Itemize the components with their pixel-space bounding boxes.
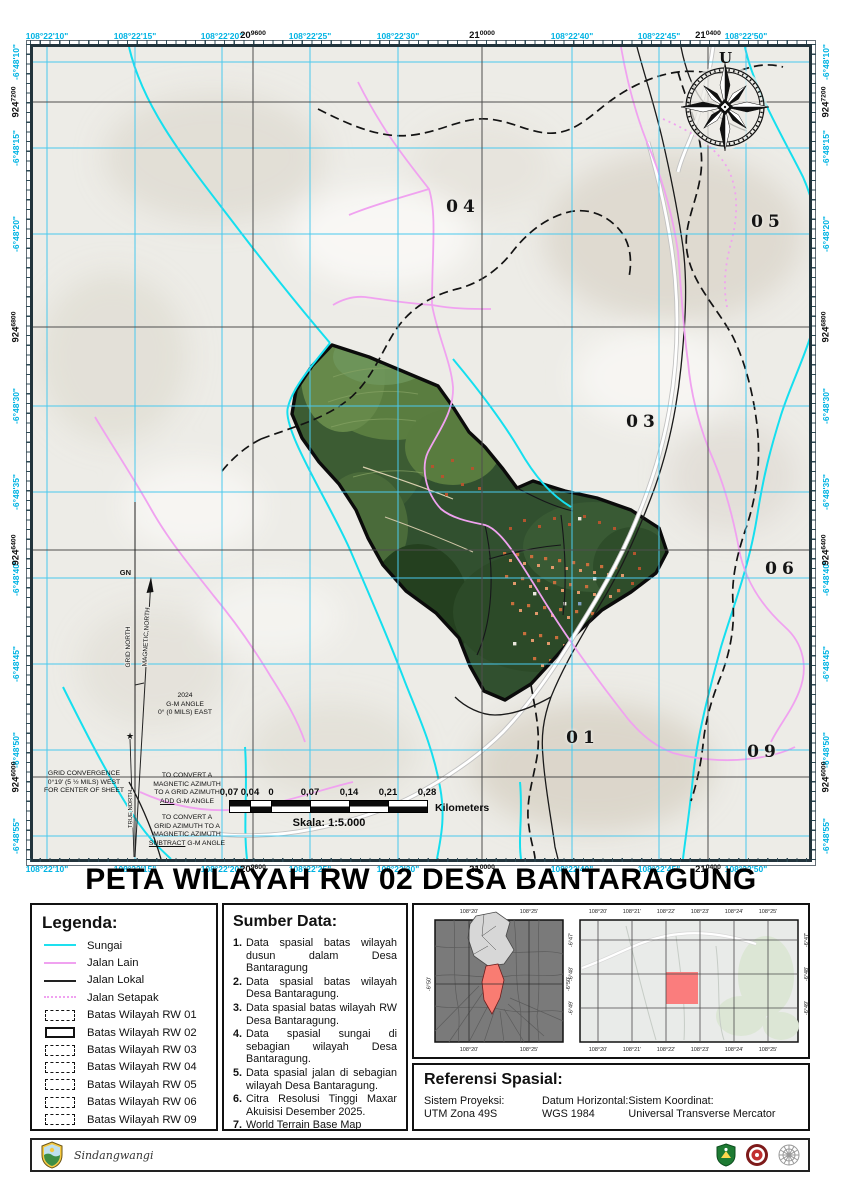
add-emphasis: ADD <box>160 798 174 805</box>
inset-lon-label: 108°23' <box>691 1047 710 1053</box>
data-source-item: 6. Citra Resolusi Tinggi Maxar Akuisisi … <box>233 1093 397 1118</box>
spatial-reference-panel: Referensi Spasial: Sistem Proyeksi: UTM … <box>412 1063 810 1131</box>
grid-north-label: GRID NORTH <box>125 626 132 667</box>
legend-swatch-icon <box>42 1044 78 1057</box>
legend-item: Batas Wilayah RW 02 <box>42 1024 206 1041</box>
scalebar-tick-label: 0,04 <box>241 787 260 798</box>
easting-main: 21 <box>695 30 706 41</box>
northing-label: 9246800 <box>11 312 22 343</box>
northing-sup: 6800 <box>821 312 828 327</box>
regency-crest-icon <box>40 1141 64 1169</box>
convert-grid-line: TO CONVERT A <box>137 814 237 823</box>
northing-label: 9246000 <box>821 762 832 793</box>
latitude-label: -6°48'10" <box>11 44 21 80</box>
data-source-text: World Terrain Base Map <box>246 1119 361 1132</box>
northing-main: 924 <box>821 777 832 793</box>
region-label: 06 <box>765 559 799 579</box>
scalebar-tick-label: 0,07 <box>301 787 320 798</box>
scalebar-bar <box>229 800 428 813</box>
longitude-label: 108°22'45" <box>638 31 681 41</box>
inset-lon-label: 108°22' <box>657 909 676 915</box>
northing-sup: 7200 <box>11 87 18 102</box>
spatial-reference-field: Datum Horizontal: WGS 1984 <box>542 1095 628 1121</box>
easting-label: 209600 <box>240 30 266 41</box>
grid-convergence-line: 0°19' (5 ½ MILS) WEST <box>33 779 135 788</box>
convert-magnetic-emphasis-line: ADD G-M ANGLE <box>137 798 237 807</box>
northing-sup: 6800 <box>11 312 18 327</box>
northing-sup: 6000 <box>11 762 18 777</box>
legend-swatch-icon <box>42 957 78 970</box>
legend-item-label: Batas Wilayah RW 01 <box>87 1009 197 1021</box>
data-source-item: 1. Data spasial batas wilayah dusun dala… <box>233 937 397 975</box>
grid-convergence-note: GRID CONVERGENCE0°19' (5 ½ MILS) WESTFOR… <box>33 770 135 796</box>
latitude-label: -6°48'35" <box>11 474 21 510</box>
legend-item-label: Batas Wilayah RW 03 <box>87 1044 197 1056</box>
legend-item-label: Jalan Lain <box>87 957 139 969</box>
data-source-item: 4. Data spasial sungai di sebagian wilay… <box>233 1028 397 1066</box>
northing-label: 9247200 <box>11 87 22 118</box>
grid-convergence-line: GRID CONVERGENCE <box>33 770 135 779</box>
convert-grid-line: GRID AZIMUTH TO A <box>137 823 237 832</box>
legend-swatch-icon <box>42 1026 78 1039</box>
inset-lon-label: 108°20' <box>460 909 479 915</box>
north-arrow-label: U <box>719 49 732 67</box>
spatial-reference-value: UTM Zona 49S <box>424 1108 542 1121</box>
easting-label: 210400 <box>695 30 721 41</box>
region-label: 05 <box>751 212 785 232</box>
latitude-label: -6°48'45" <box>11 646 21 682</box>
northing-sup: 6400 <box>821 535 828 550</box>
gm-angle-note: 2024G-M ANGLE0° (0 MILS) EAST <box>137 692 233 718</box>
latitude-label: -6°48'30" <box>821 388 831 424</box>
gm-angle-line: G-M ANGLE <box>137 701 233 710</box>
gm-angle-line: 2024 <box>137 692 233 701</box>
latitude-label: -6°48'55" <box>821 818 831 854</box>
longitude-label: 108°22'20" <box>201 31 244 41</box>
subtract-tail: G-M ANGLE <box>185 840 225 847</box>
data-source-text: Citra Resolusi Tinggi Maxar Akuisisi Des… <box>246 1093 397 1118</box>
data-source-number: 1. <box>233 937 246 975</box>
inset-lon-label: 108°20' <box>589 1047 608 1053</box>
longitude-label: 108°22'40" <box>551 31 594 41</box>
inset-lon-label: 108°25' <box>759 1047 778 1053</box>
legend-swatch-icon <box>42 1113 78 1126</box>
data-source-text: Data spasial batas wilayah RW Desa Banta… <box>246 1002 397 1027</box>
inset-lon-label: 108°25' <box>520 1047 539 1053</box>
longitude-label: 108°22'50" <box>725 31 768 41</box>
inset-lat-label: -6°47' <box>568 933 574 947</box>
gn-label: GN <box>120 568 131 577</box>
legend-item-label: Batas Wilayah RW 05 <box>87 1079 197 1091</box>
region-label: 09 <box>747 742 781 762</box>
legend-item: Batas Wilayah RW 03 <box>42 1041 206 1058</box>
northing-main: 924 <box>821 102 832 118</box>
spatial-reference-title: Referensi Spasial: <box>424 1071 798 1089</box>
easting-label: 210000 <box>469 30 495 41</box>
scalebar-segment <box>389 801 427 812</box>
inset-lon-label: 108°21' <box>623 909 642 915</box>
inset-lat-label: -6°49' <box>804 1001 810 1015</box>
data-source-number: 7. <box>233 1119 246 1132</box>
legend-item: Jalan Lokal <box>42 972 206 989</box>
data-source-number: 6. <box>233 1093 246 1118</box>
northing-sup: 6000 <box>821 762 828 777</box>
true-north-star-icon: ★ <box>126 731 134 741</box>
district-locator-map: 108°20' 108°21' 108°22' 108°23' 108°24' … <box>566 906 812 1056</box>
legend-item: Jalan Lain <box>42 954 206 971</box>
red-badge-logo-icon <box>745 1143 769 1167</box>
legend-swatch-icon <box>42 1061 78 1074</box>
inset-lon-label: 108°22' <box>657 1047 676 1053</box>
legend-item-label: Jalan Setapak <box>87 992 159 1004</box>
map-sheet: 040503060109 U GN GRID NORTH MAGNETIC NO… <box>0 0 842 1191</box>
easting-sup: 9600 <box>251 30 266 37</box>
region-label: 04 <box>446 197 480 217</box>
legend-swatch-icon <box>42 939 78 952</box>
scalebar-tick-label: 0,14 <box>340 787 359 798</box>
inset-lat-label: -6°48' <box>804 967 810 981</box>
data-source-item: 5. Data spasial jalan di sebagian wilaya… <box>233 1067 397 1092</box>
legend-item-label: Batas Wilayah RW 02 <box>87 1027 197 1039</box>
legend-item: Batas Wilayah RW 09 <box>42 1111 206 1128</box>
latitude-label: -6°48'30" <box>11 388 21 424</box>
inset-lat-label: -6°49' <box>568 1001 574 1015</box>
longitude-label: 108°22'15" <box>114 31 157 41</box>
latitude-label: -6°48'10" <box>821 44 831 80</box>
longitude-label: 108°22'10" <box>26 31 69 41</box>
legend-panel: Legenda: Sungai Jalan Lain Jalan Lokal <box>30 903 218 1131</box>
locator-maps-panel: 108°20' 108°25' 108°20' 108°25' -6°50' -… <box>412 903 810 1059</box>
magnetic-north-arrow-icon <box>147 577 154 593</box>
northing-label: 9246800 <box>821 312 832 343</box>
scalebar-segment <box>311 801 350 812</box>
inset-lon-label: 108°25' <box>520 909 539 915</box>
grid-convergence-line: FOR CENTER OF SHEET <box>33 787 135 796</box>
northing-label: 9246400 <box>821 535 832 566</box>
northing-main: 924 <box>11 777 22 793</box>
data-source-item: 7. World Terrain Base Map <box>233 1119 397 1132</box>
spatial-reference-field: Sistem Proyeksi: UTM Zona 49S <box>424 1095 542 1121</box>
data-sources-title: Sumber Data: <box>233 913 397 931</box>
spatial-reference-label: Datum Horizontal: <box>542 1095 628 1108</box>
data-sources-panel: Sumber Data: 1. Data spasial batas wilay… <box>222 903 408 1131</box>
legend-swatch-icon <box>42 991 78 1004</box>
northing-label: 9246400 <box>11 535 22 566</box>
legend-item-label: Batas Wilayah RW 09 <box>87 1114 197 1126</box>
legend-item-label: Batas Wilayah RW 06 <box>87 1096 197 1108</box>
easting-sup: 0000 <box>480 30 495 37</box>
latitude-label: -6°48'55" <box>11 818 21 854</box>
legend-item: Jalan Setapak <box>42 989 206 1006</box>
legend-swatch-icon <box>42 1096 78 1109</box>
data-source-text: Data spasial jalan di sebagian wilayah D… <box>246 1067 397 1092</box>
map-axis-right: -6°48'10"-6°48'15"-6°48'20"-6°48'30"-6°4… <box>813 47 839 859</box>
inset-lat-label: -6°50' <box>426 977 432 991</box>
legend-swatch-icon <box>42 1009 78 1022</box>
legend-swatch-icon <box>42 974 78 987</box>
northing-main: 924 <box>11 327 22 343</box>
scalebar-segment <box>272 801 311 812</box>
inset-lon-label: 108°23' <box>691 909 710 915</box>
northing-label: 9246000 <box>11 762 22 793</box>
inset-lon-label: 108°25' <box>759 909 778 915</box>
script-logo-text: Sindangwangi <box>74 1149 153 1162</box>
legend-item-label: Jalan Lokal <box>87 974 144 986</box>
northing-label: 9247200 <box>821 87 832 118</box>
northing-main: 924 <box>11 550 22 566</box>
data-source-text: Data spasial sungai di sebagian wilayah … <box>246 1028 397 1066</box>
inset-lon-label: 108°24' <box>725 909 744 915</box>
scalebar-tick-label: 0,28 <box>418 787 437 798</box>
map-axis-top: 108°22'10"108°22'15"108°22'20"108°22'25"… <box>33 26 809 42</box>
latitude-label: -6°48'45" <box>821 646 831 682</box>
data-source-number: 3. <box>233 1002 246 1027</box>
spatial-reference-field: Sistem Koordinat: Universal Transverse M… <box>628 1095 775 1121</box>
data-source-number: 2. <box>233 976 246 1001</box>
longitude-label: 108°22'30" <box>377 31 420 41</box>
scalebar-segment <box>350 801 389 812</box>
convert-grid-line: MAGNETIC AZIMUTH <box>137 831 237 840</box>
latitude-label: -6°48'20" <box>11 216 21 252</box>
northing-main: 924 <box>821 550 832 566</box>
spatial-reference-value: WGS 1984 <box>542 1108 628 1121</box>
highlighted-rw-extent <box>666 972 698 1004</box>
data-source-text: Data spasial batas wilayah dusun dalam D… <box>246 937 397 975</box>
longitude-label: 108°22'25" <box>289 31 332 41</box>
convert-grid-emphasis-line: SUBTRACT G-M ANGLE <box>137 840 237 849</box>
northing-sup: 7200 <box>821 87 828 102</box>
scalebar-ticks: 0,070,0400,070,140,210,28 <box>229 787 439 799</box>
scalebar-tick-label: 0 <box>268 787 273 798</box>
legend-item-label: Sungai <box>87 940 122 952</box>
inset-lon-label: 108°20' <box>589 909 608 915</box>
green-shield-logo-icon <box>716 1143 736 1167</box>
inset-lon-label: 108°20' <box>460 1047 479 1053</box>
easting-main: 20 <box>240 30 251 41</box>
data-source-text: Data spasial batas wilayah Desa Bantarag… <box>246 976 397 1001</box>
easting-sup: 0400 <box>706 30 721 37</box>
northing-main: 924 <box>821 327 832 343</box>
scalebar-unit-label: Kilometers <box>435 802 489 814</box>
footer-bar: Sindangwangi <box>30 1138 810 1172</box>
convert-grid-note: TO CONVERT AGRID AZIMUTH TO AMAGNETIC AZ… <box>137 814 237 848</box>
footer-left-logos: Sindangwangi <box>40 1141 153 1169</box>
legend-item: Batas Wilayah RW 06 <box>42 1094 206 1111</box>
gray-rosette-logo-icon <box>778 1144 800 1166</box>
latitude-label: -6°48'15" <box>11 130 21 166</box>
footer-right-logos <box>716 1143 800 1167</box>
magnetic-north-label: MAGNETIC NORTH <box>141 607 151 667</box>
scalebar-segment <box>230 801 251 812</box>
data-source-item: 2. Data spasial batas wilayah Desa Banta… <box>233 976 397 1001</box>
legend-swatch-icon <box>42 1078 78 1091</box>
latitude-label: -6°48'15" <box>821 130 831 166</box>
region-label: 01 <box>566 728 600 748</box>
page-title: PETA WILAYAH RW 02 DESA BANTARAGUNG <box>0 863 842 897</box>
spatial-reference-label: Sistem Koordinat: <box>628 1095 775 1108</box>
data-source-item: 3. Data spasial batas wilayah RW Desa Ba… <box>233 1002 397 1027</box>
legend-item: Batas Wilayah RW 05 <box>42 1076 206 1093</box>
latitude-label: -6°48'20" <box>821 216 831 252</box>
add-tail: G-M ANGLE <box>174 798 214 805</box>
latitude-label: -6°48'35" <box>821 474 831 510</box>
district-locator-art <box>566 906 812 1056</box>
easting-main: 21 <box>469 30 480 41</box>
convert-magnetic-line: TO CONVERT A <box>137 772 237 781</box>
inset-lat-label: -6°47' <box>804 933 810 947</box>
scalebar-segment <box>251 801 272 812</box>
scalebar-tick-label: 0,21 <box>379 787 398 798</box>
northing-main: 924 <box>11 102 22 118</box>
region-label: 03 <box>626 412 660 432</box>
gm-angle-line: 0° (0 MILS) EAST <box>137 709 233 718</box>
scalebar-tick-label: 0,07 <box>220 787 239 798</box>
inset-lon-label: 108°24' <box>725 1047 744 1053</box>
legend-item: Batas Wilayah RW 01 <box>42 1007 206 1024</box>
regency-locator-map: 108°20' 108°25' 108°20' 108°25' -6°50' -… <box>424 906 574 1056</box>
inset-lon-label: 108°21' <box>623 1047 642 1053</box>
legend-item: Batas Wilayah RW 04 <box>42 1059 206 1076</box>
data-source-number: 4. <box>233 1028 246 1066</box>
legend-title: Legenda: <box>42 913 206 933</box>
data-source-number: 5. <box>233 1067 246 1092</box>
scale-bar: 0,070,0400,070,140,210,28 Kilometers Ska… <box>229 787 509 837</box>
spatial-reference-value: Universal Transverse Mercator <box>628 1108 775 1121</box>
map-axis-left: -6°48'10"-6°48'15"-6°48'20"-6°48'30"-6°4… <box>3 47 29 859</box>
regency-locator-art <box>424 906 574 1056</box>
map-canvas: 040503060109 U GN GRID NORTH MAGNETIC NO… <box>30 44 812 862</box>
inset-lat-label: -6°48' <box>568 967 574 981</box>
scale-text: Skala: 1:5.000 <box>229 817 429 829</box>
subtract-emphasis: SUBTRACT <box>149 840 186 847</box>
northing-sup: 6400 <box>11 535 18 550</box>
spatial-reference-label: Sistem Proyeksi: <box>424 1095 542 1108</box>
legend-item-label: Batas Wilayah RW 04 <box>87 1061 197 1073</box>
legend-item: Sungai <box>42 937 206 954</box>
